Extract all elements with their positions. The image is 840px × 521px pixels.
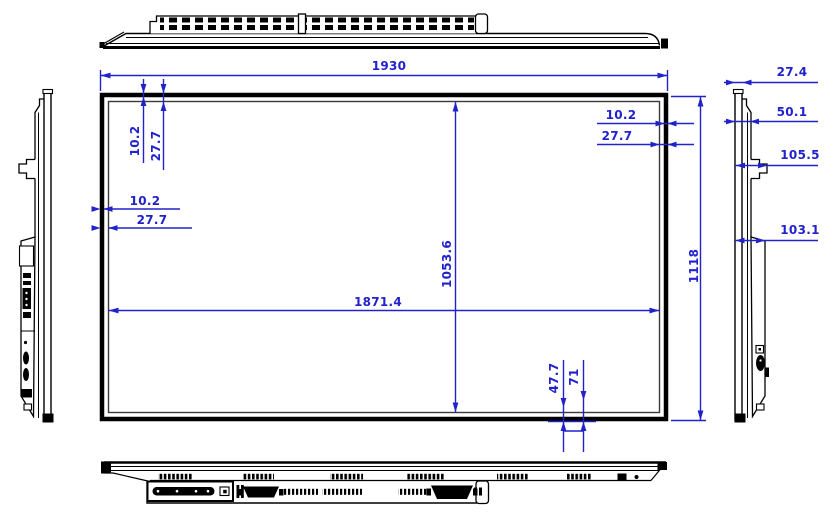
left-side-view [19,90,54,423]
dim-front-thickness: 27.4 [777,66,808,78]
connector-vent-dots [284,489,428,495]
dim-bezel-left-a: 10.2 [130,195,161,207]
top-left-endcap [100,42,105,48]
front-view [102,95,666,419]
left-top-cap [43,90,53,94]
dim-bezel-top-a: 10.2 [129,126,141,157]
right-top-cap [734,90,744,94]
right-side-view [734,90,770,423]
vent-slots-row [160,25,474,30]
bottom-right-endcap [658,462,668,470]
dim-bracket-depth: 105.5 [780,149,819,161]
terminal-strip [153,487,215,496]
front-outer-frame [102,95,666,419]
left-bracket [19,160,35,179]
left-handle [20,246,34,266]
vent-strip-cap [476,14,488,34]
right-back-box [751,237,765,417]
bottom-vent-dots [158,474,592,480]
dim-body-depth: 103.1 [780,224,819,236]
dim-bezel-top-b: 27.7 [150,131,162,162]
bottom-view [101,462,667,504]
technical-drawing [0,0,840,521]
top-view [100,14,669,49]
left-bottom-foot [43,414,54,423]
right-bottom-foot [735,414,746,423]
dim-bezel-right-b: 27.7 [602,130,633,142]
dim-bezel-left-b: 27.7 [137,214,168,226]
right-box-foot [757,404,765,410]
right-bracket [751,160,767,179]
dim-bezel-right-a: 10.2 [606,109,637,121]
bottom-switch [618,474,627,481]
dim-overall-width: 1930 [372,60,407,72]
dim-bezel-bottom-b: 71 [568,368,580,385]
side-jack [756,355,765,371]
connector-bar-cap [476,481,489,504]
dsub-connector [243,487,279,498]
bottom-dot [635,475,639,479]
dimension-drawing-canvas: 1930 1118 1871.4 1053.6 10.2 27.7 10.2 2… [0,0,840,521]
dim-active-width: 1871.4 [354,296,402,308]
side-bump [765,368,770,378]
top-right-endcap [661,39,668,49]
dsub-connector [431,486,473,500]
vent-slots-row [160,18,474,23]
dim-bezel-bottom-a: 47.7 [548,363,560,394]
bottom-left-endcap [101,462,111,474]
dim-panel-depth: 50.1 [777,106,808,118]
left-box-foot [24,404,32,410]
dim-overall-height: 1118 [688,249,700,284]
vent-strip-divider [299,14,306,34]
dim-active-height: 1053.6 [441,240,453,288]
